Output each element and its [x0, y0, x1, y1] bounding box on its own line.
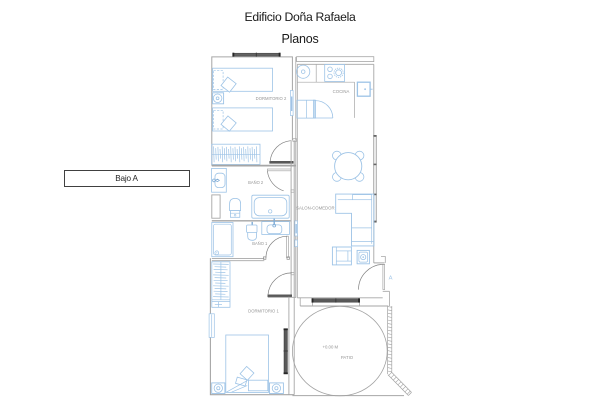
- svg-text:A: A: [389, 276, 393, 282]
- svg-text:SALON-COMEDOR: SALON-COMEDOR: [296, 206, 334, 211]
- svg-text:+0.00 M: +0.00 M: [322, 345, 338, 350]
- svg-text:DORMITORIO 2: DORMITORIO 2: [256, 96, 287, 101]
- svg-text:PATIO: PATIO: [341, 355, 354, 360]
- svg-text:DORMITORIO 1: DORMITORIO 1: [248, 309, 279, 314]
- svg-text:BAÑO 2: BAÑO 2: [248, 180, 264, 185]
- svg-text:BAÑO 1: BAÑO 1: [252, 241, 268, 246]
- svg-text:COCINA: COCINA: [333, 89, 350, 94]
